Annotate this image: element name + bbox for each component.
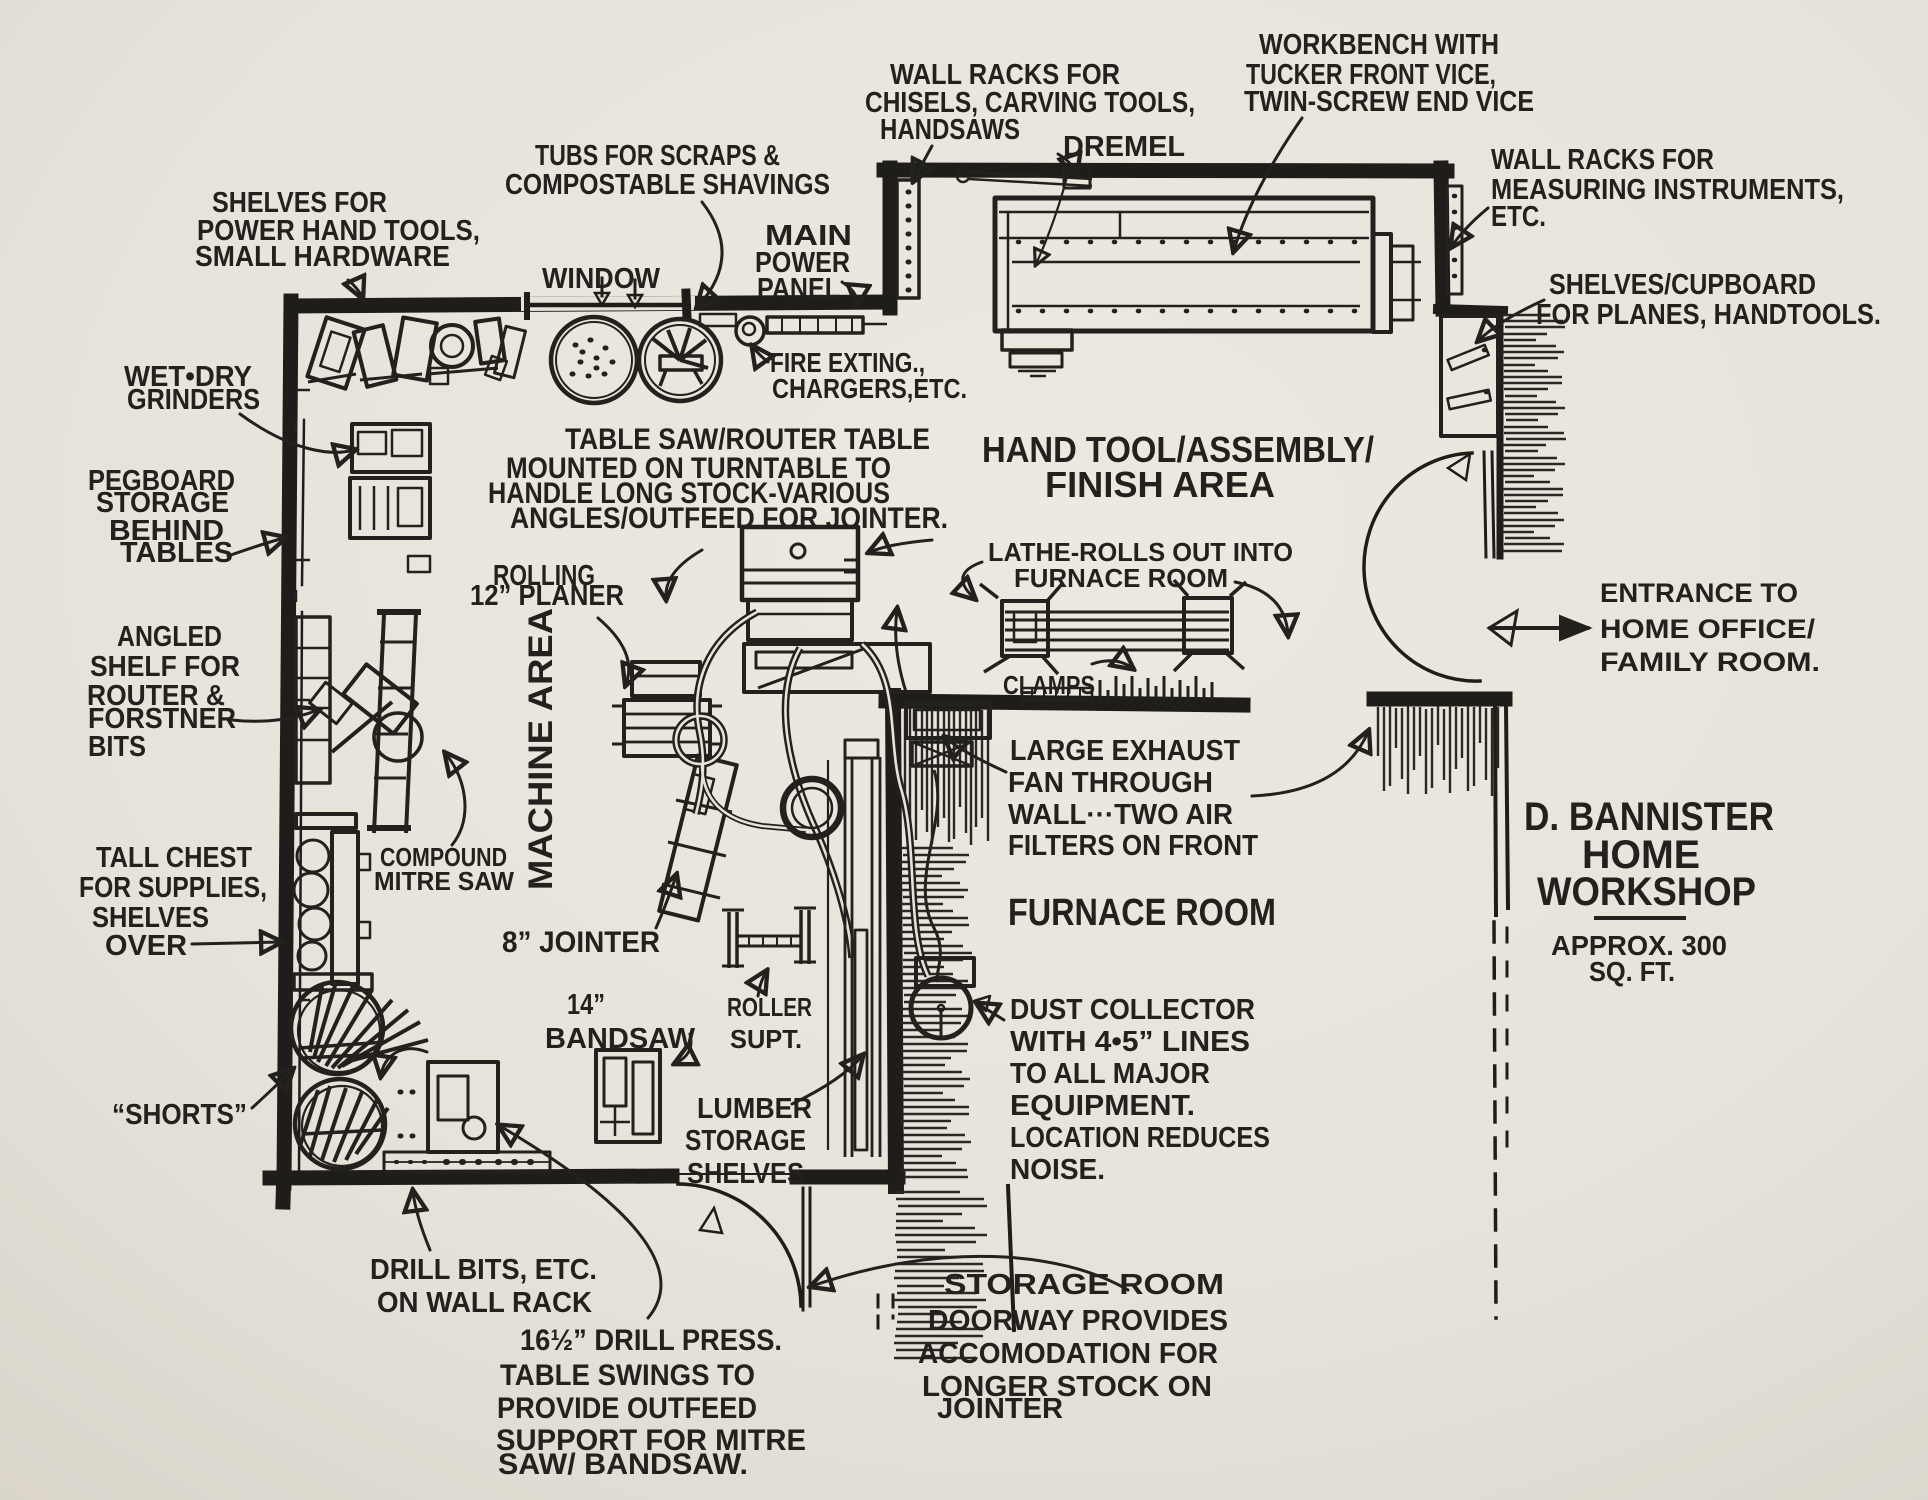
svg-text:12” PLANER: 12” PLANER: [470, 580, 624, 612]
svg-text:TABLE SWINGS TO: TABLE SWINGS TO: [500, 1359, 755, 1392]
svg-text:HANDSAWS: HANDSAWS: [880, 114, 1020, 146]
svg-text:TUBS FOR SCRAPS &: TUBS FOR SCRAPS &: [535, 140, 780, 172]
svg-text:LARGE EXHAUST: LARGE EXHAUST: [1010, 735, 1240, 767]
svg-text:TALL CHEST: TALL CHEST: [96, 842, 252, 874]
svg-text:FOR PLANES, HANDTOOLS.: FOR PLANES, HANDTOOLS.: [1536, 299, 1881, 331]
svg-text:COMPOSTABLE SHAVINGS: COMPOSTABLE SHAVINGS: [505, 169, 830, 201]
svg-text:WORKBENCH WITH: WORKBENCH WITH: [1259, 29, 1499, 61]
svg-text:JOINTER: JOINTER: [937, 1393, 1063, 1425]
svg-text:DREMEL: DREMEL: [1063, 131, 1185, 163]
svg-text:ACCOMODATION FOR: ACCOMODATION FOR: [918, 1338, 1218, 1370]
svg-text:14”: 14”: [567, 989, 605, 1021]
svg-text:LUMBER: LUMBER: [697, 1093, 812, 1125]
svg-text:ANGLES/OUTFEED FOR JOINTER.: ANGLES/OUTFEED FOR JOINTER.: [510, 502, 948, 535]
svg-text:FAN THROUGH: FAN THROUGH: [1008, 767, 1213, 799]
svg-text:OVER: OVER: [105, 930, 187, 962]
svg-text:WALL···TWO AIR: WALL···TWO AIR: [1008, 799, 1233, 831]
svg-text:MACHINE AREA: MACHINE AREA: [522, 608, 560, 890]
svg-text:TABLES: TABLES: [120, 537, 233, 569]
svg-text:“SHORTS”: “SHORTS”: [112, 1099, 247, 1131]
svg-text:SHELVES: SHELVES: [687, 1158, 804, 1190]
svg-text:LOCATION REDUCES: LOCATION REDUCES: [1010, 1122, 1270, 1154]
svg-text:EQUIPMENT.: EQUIPMENT.: [1010, 1090, 1195, 1122]
svg-text:CHARGERS,ETC.: CHARGERS,ETC.: [772, 373, 967, 404]
svg-text:TO ALL MAJOR: TO ALL MAJOR: [1010, 1058, 1210, 1090]
svg-text:BITS: BITS: [88, 731, 146, 763]
svg-text:NOISE.: NOISE.: [1010, 1154, 1105, 1186]
svg-text:GRINDERS: GRINDERS: [127, 384, 260, 416]
svg-text:HOME OFFICE/: HOME OFFICE/: [1600, 614, 1816, 644]
svg-text:MITRE SAW: MITRE SAW: [374, 866, 514, 896]
svg-text:WINDOW: WINDOW: [542, 263, 661, 295]
svg-text:FURNACE ROOM: FURNACE ROOM: [1008, 892, 1276, 934]
svg-text:DUST COLLECTOR: DUST COLLECTOR: [1010, 994, 1255, 1026]
svg-text:PANEL: PANEL: [757, 273, 840, 305]
svg-text:WALL RACKS FOR: WALL RACKS FOR: [1491, 144, 1714, 176]
svg-text:WORKSHOP: WORKSHOP: [1537, 870, 1756, 914]
svg-text:SMALL HARDWARE: SMALL HARDWARE: [195, 241, 450, 273]
svg-text:ON WALL RACK: ON WALL RACK: [377, 1287, 592, 1319]
svg-text:FOR SUPPLIES,: FOR SUPPLIES,: [79, 872, 267, 904]
svg-text:SAW/ BANDSAW.: SAW/ BANDSAW.: [498, 1448, 748, 1481]
svg-text:FINISH AREA: FINISH AREA: [1045, 464, 1275, 505]
svg-text:PROVIDE OUTFEED: PROVIDE OUTFEED: [497, 1392, 757, 1425]
svg-text:BANDSAW: BANDSAW: [545, 1023, 696, 1055]
svg-text:WITH 4•5” LINES: WITH 4•5” LINES: [1010, 1026, 1250, 1058]
svg-text:SQ. FT.: SQ. FT.: [1589, 956, 1675, 987]
svg-text:ETC.: ETC.: [1491, 201, 1546, 233]
svg-text:16½” DRILL PRESS.: 16½” DRILL PRESS.: [520, 1324, 782, 1357]
svg-text:SHELVES/CUPBOARD: SHELVES/CUPBOARD: [1549, 269, 1816, 301]
svg-text:8” JOINTER: 8” JOINTER: [502, 926, 660, 959]
svg-text:TWIN-SCREW END VICE: TWIN-SCREW END VICE: [1244, 86, 1534, 118]
svg-text:SUPT.: SUPT.: [730, 1024, 802, 1054]
svg-text:DRILL BITS, ETC.: DRILL BITS, ETC.: [370, 1254, 597, 1286]
svg-text:FAMILY ROOM.: FAMILY ROOM.: [1600, 647, 1820, 677]
svg-text:DOORWAY PROVIDES: DOORWAY PROVIDES: [928, 1305, 1228, 1337]
svg-text:STORAGE ROOM: STORAGE ROOM: [944, 1269, 1224, 1301]
svg-text:FURNACE ROOM: FURNACE ROOM: [1014, 563, 1228, 593]
svg-text:ROLLER: ROLLER: [727, 992, 812, 1022]
svg-text:ENTRANCE TO: ENTRANCE TO: [1600, 578, 1798, 608]
svg-text:CLAMPS: CLAMPS: [1003, 670, 1095, 700]
svg-text:ANGLED: ANGLED: [117, 621, 222, 653]
svg-text:STORAGE: STORAGE: [685, 1125, 806, 1157]
svg-text:SHELF FOR: SHELF FOR: [90, 651, 240, 683]
svg-text:FILTERS ON FRONT: FILTERS ON FRONT: [1008, 830, 1258, 862]
